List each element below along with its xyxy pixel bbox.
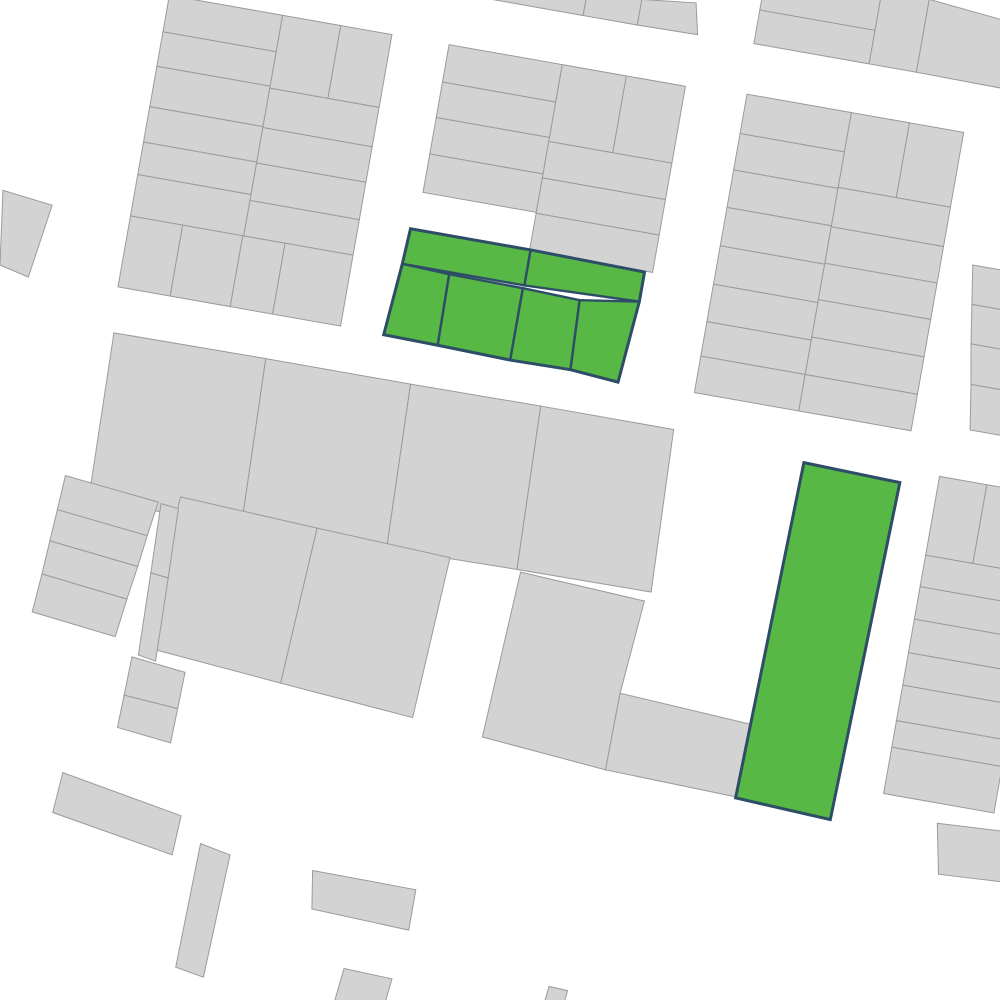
parcel-map-canvas[interactable] <box>0 0 1000 1000</box>
parcel[interactable] <box>605 693 753 797</box>
parcel[interactable] <box>512 406 680 593</box>
parcel[interactable] <box>0 190 53 279</box>
parcel[interactable] <box>916 0 1000 89</box>
parcel[interactable] <box>273 243 353 326</box>
parcel[interactable] <box>49 772 185 855</box>
parcel[interactable] <box>170 225 243 306</box>
parcel[interactable] <box>583 0 642 25</box>
parcel[interactable] <box>175 843 231 978</box>
parcel[interactable] <box>305 871 416 931</box>
parcel[interactable] <box>544 986 568 1000</box>
parcel[interactable] <box>491 0 588 16</box>
selected-parcel[interactable] <box>735 461 901 821</box>
map-layer-group <box>0 0 1000 1000</box>
parcel[interactable] <box>929 819 1000 886</box>
parcel[interactable] <box>613 76 686 163</box>
map-viewport[interactable] <box>0 0 1000 1000</box>
parcel[interactable] <box>637 0 703 36</box>
parcel[interactable] <box>328 967 392 1000</box>
parcel[interactable] <box>963 384 1000 438</box>
